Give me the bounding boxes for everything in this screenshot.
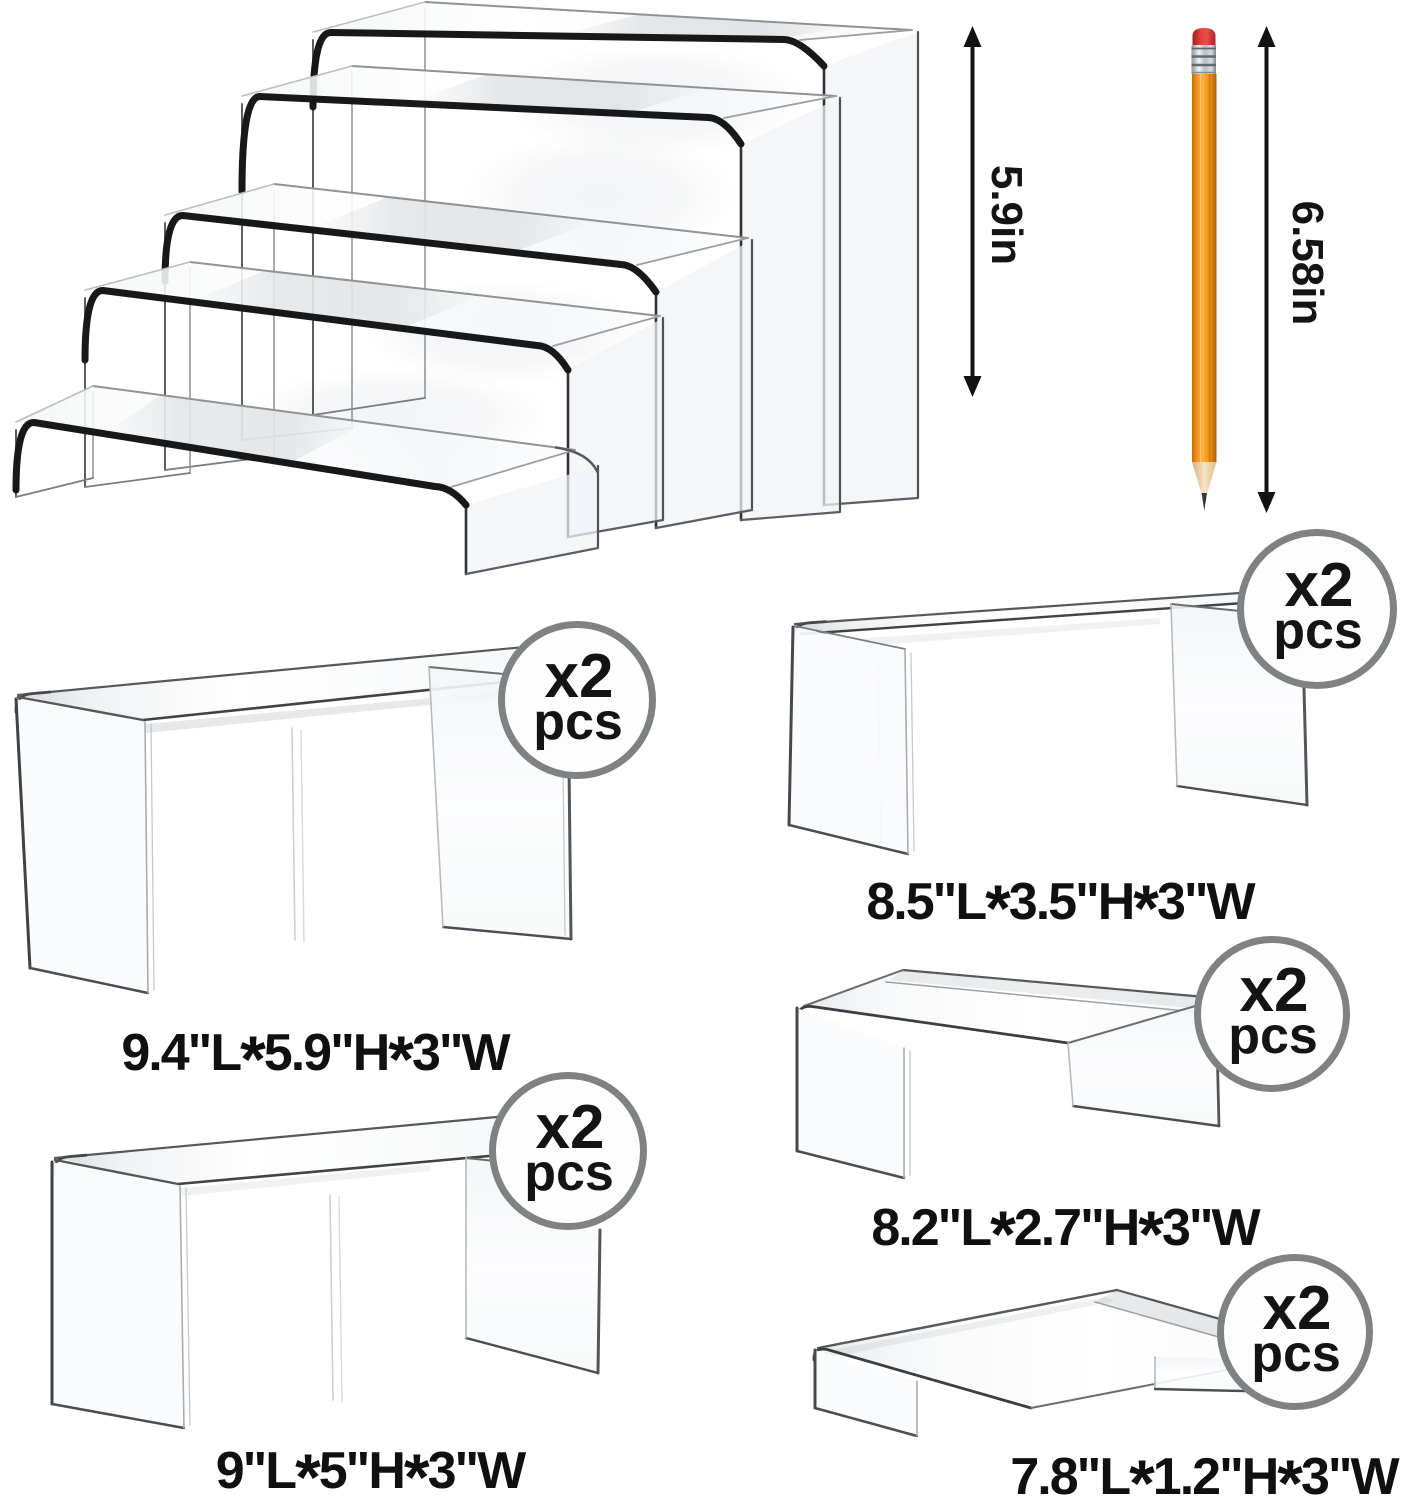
svg-text:8.5"L*​3.5"H*​3"W: 8.5"L*​3.5"H*​3"W xyxy=(866,871,1256,945)
svg-text:9.4"L*​5.9"H*​3"W: 9.4"L*​5.9"H*​3"W xyxy=(121,1022,511,1096)
svg-text:pcs: pcs xyxy=(1228,1007,1318,1065)
svg-text:pcs: pcs xyxy=(1273,602,1363,660)
svg-text:9"L*​5"H*​3"W: 9"L*​5"H*​3"W xyxy=(216,1440,527,1500)
svg-text:pcs: pcs xyxy=(524,1144,614,1202)
svg-text:8.2"L*​2.7"H*​3"W: 8.2"L*​2.7"H*​3"W xyxy=(871,1197,1261,1271)
svg-text:5.9in: 5.9in xyxy=(982,165,1031,265)
svg-text:pcs: pcs xyxy=(533,693,623,751)
svg-text:6.58in: 6.58in xyxy=(1283,201,1332,326)
svg-text:pcs: pcs xyxy=(1251,1325,1341,1383)
svg-text:7.8"L*​1.2"H*​3"W: 7.8"L*​1.2"H*​3"W xyxy=(1010,1446,1400,1500)
